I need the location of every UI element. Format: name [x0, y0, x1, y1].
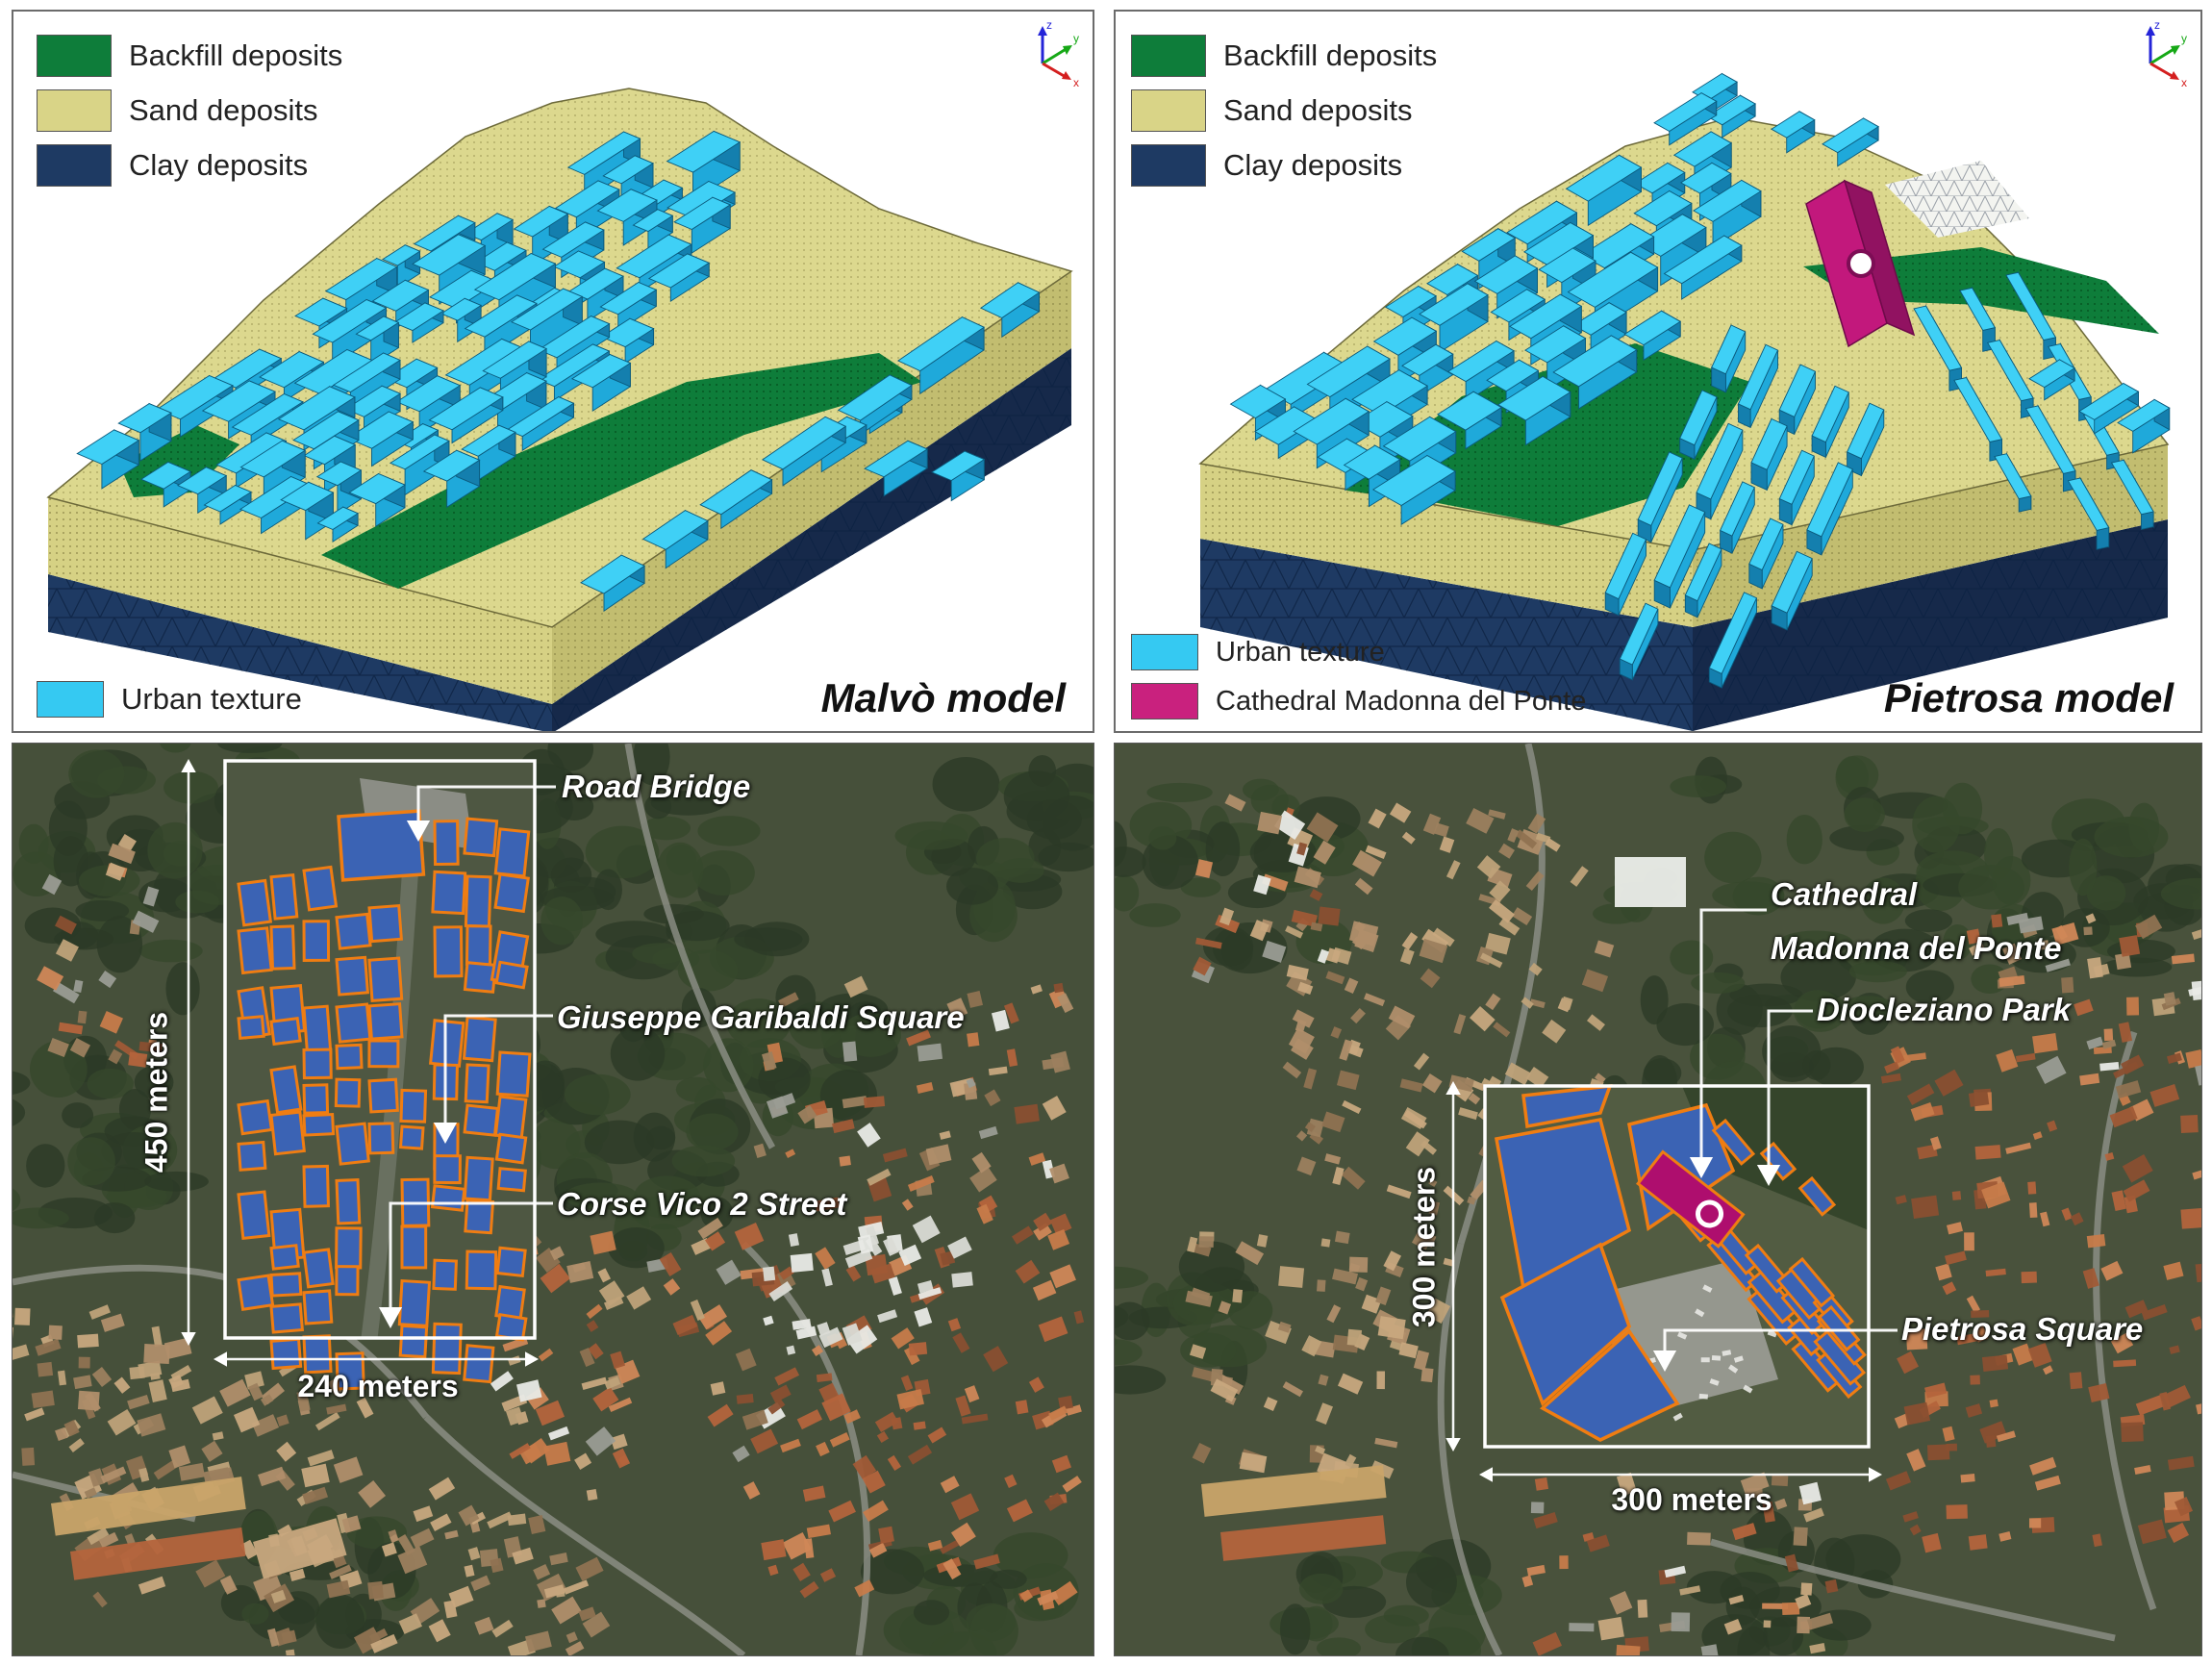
axis-triad-icon: z y x: [2122, 17, 2193, 88]
axis-z-label: z: [1046, 18, 1052, 32]
urban-swatch: [37, 681, 104, 718]
panel-malvo-model: Backfill deposits Sand deposits Clay dep…: [12, 10, 1094, 733]
legend-row: Clay deposits: [37, 144, 342, 187]
legend-row: Urban texture: [37, 681, 302, 718]
legend-label: Clay deposits: [1223, 148, 1402, 183]
road-bridge-label: Road Bridge: [562, 769, 750, 805]
cathedral-swatch: [1131, 683, 1198, 719]
legend-row: Sand deposits: [37, 89, 342, 132]
diocleziano-park-label: Diocleziano Park: [1817, 992, 2071, 1028]
legend-label: Sand deposits: [129, 93, 317, 128]
panel-pietrosa-satellite-map: Cathedral Madonna del Ponte Diocleziano …: [1114, 743, 2202, 1656]
sand-swatch: [37, 89, 112, 132]
panel-pietrosa-model: Backfill deposits Sand deposits Clay dep…: [1114, 10, 2202, 733]
axis-triad-icon: z y x: [1014, 17, 1085, 88]
legend-label: Backfill deposits: [129, 38, 342, 73]
figure: Backfill deposits Sand deposits Clay dep…: [0, 0, 2212, 1666]
malvo-inset-footprint-map: [225, 761, 535, 1389]
axis-x-label: x: [2181, 76, 2187, 88]
legend-row: Backfill deposits: [37, 35, 342, 77]
urban-swatch: [1131, 634, 1198, 670]
pietrosa-title: Pietrosa model: [1884, 675, 2174, 721]
horizontal-scale-label: 240 meters: [272, 1369, 484, 1404]
garibaldi-square-label: Giuseppe Garibaldi Square: [557, 999, 965, 1036]
malvo-title: Malvò model: [821, 675, 1066, 721]
corse-vico-label: Corse Vico 2 Street: [557, 1186, 846, 1223]
vertical-scale-label: 300 meters: [1407, 1142, 1443, 1353]
cathedral-label-line1: Cathedral: [1771, 876, 1917, 913]
malvo-satellite-image: [13, 744, 1093, 1655]
horizontal-scale-label: 300 meters: [1586, 1482, 1797, 1518]
backfill-swatch: [1131, 35, 1206, 77]
legend-row: Sand deposits: [1131, 89, 1437, 132]
legend-label: Backfill deposits: [1223, 38, 1437, 73]
pietrosa-satellite-image: [1115, 744, 2201, 1655]
pietrosa-legend-deposits: Backfill deposits Sand deposits Clay dep…: [1131, 35, 1437, 199]
pietrosa-legend-urban: Urban texture Cathedral Madonna del Pont…: [1131, 634, 1586, 719]
axis-z-label: z: [2154, 18, 2160, 32]
legend-label: Urban texture: [121, 682, 302, 717]
legend-label: Urban texture: [1216, 637, 1385, 669]
axis-y-label: y: [2181, 32, 2187, 45]
panel-malvo-satellite-map: Road Bridge Giuseppe Garibaldi Square Co…: [12, 743, 1094, 1656]
legend-label: Cathedral Madonna del Ponte: [1216, 686, 1586, 718]
pietrosa-square-label: Pietrosa Square: [1901, 1311, 2143, 1348]
cathedral-label-line2: Madonna del Ponte: [1771, 930, 2062, 967]
legend-label: Clay deposits: [129, 148, 308, 183]
malvo-legend-urban: Urban texture: [37, 681, 302, 718]
legend-row: Clay deposits: [1131, 144, 1437, 187]
sand-swatch: [1131, 89, 1206, 132]
legend-label: Sand deposits: [1223, 93, 1412, 128]
vertical-scale-label: 450 meters: [139, 987, 175, 1199]
malvo-legend-deposits: Backfill deposits Sand deposits Clay dep…: [37, 35, 342, 199]
axis-y-label: y: [1073, 32, 1079, 45]
legend-row: Backfill deposits: [1131, 35, 1437, 77]
pietrosa-inset-footprint-map: [1485, 1086, 1869, 1447]
axis-x-label: x: [1073, 76, 1079, 88]
backfill-swatch: [37, 35, 112, 77]
clay-swatch: [1131, 144, 1206, 187]
legend-row: Cathedral Madonna del Ponte: [1131, 683, 1586, 719]
clay-swatch: [37, 144, 112, 187]
legend-row: Urban texture: [1131, 634, 1586, 670]
